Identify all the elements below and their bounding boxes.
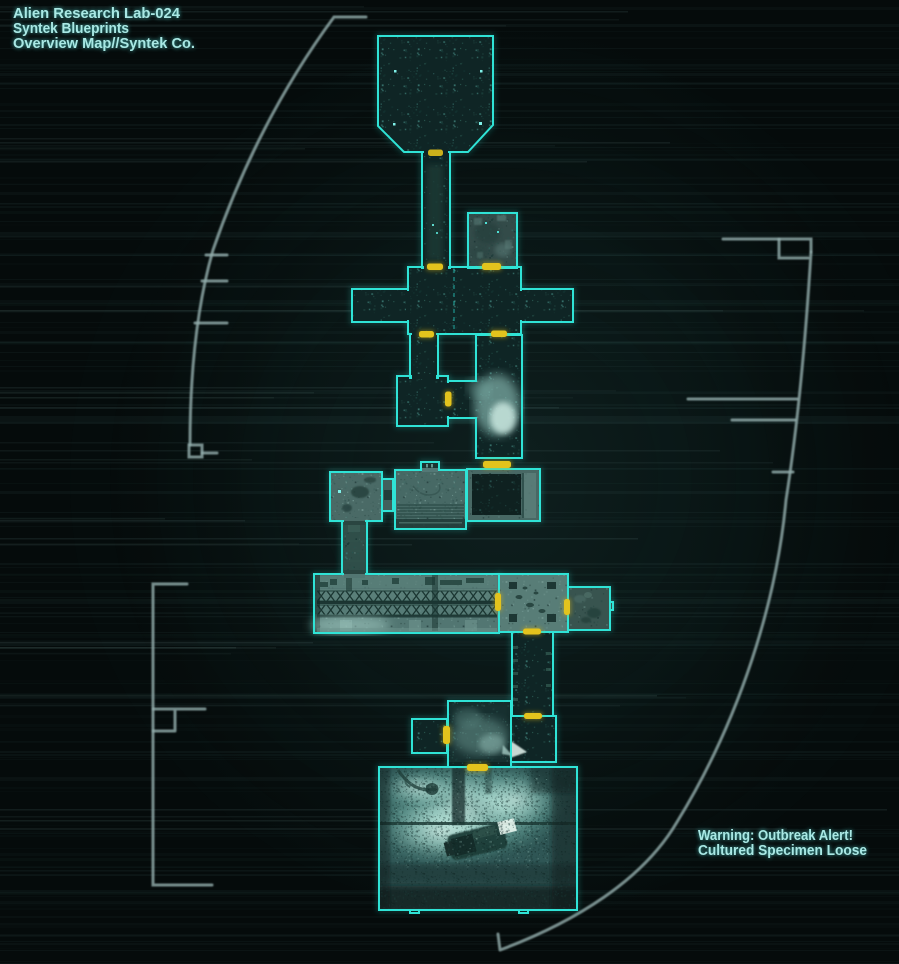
svg-text:Warning: Outbreak Alert!: Warning: Outbreak Alert!: [698, 828, 853, 844]
svg-text:Cultured Specimen Loose: Cultured Specimen Loose: [698, 843, 867, 859]
svg-text:Alien Research Lab-024: Alien Research Lab-024: [13, 6, 180, 22]
svg-text:Overview Map//Syntek Co.: Overview Map//Syntek Co.: [13, 36, 195, 52]
svg-text:Syntek Blueprints: Syntek Blueprints: [13, 21, 129, 37]
